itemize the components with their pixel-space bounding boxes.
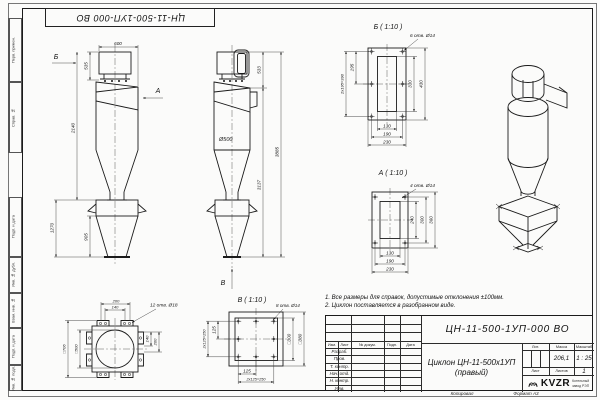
inlet-flange-bolts — [104, 80, 127, 82]
tb-mass-value: 206,1 — [549, 350, 574, 367]
dim-130-label: 130 — [386, 251, 394, 256]
drawing-line — [499, 196, 557, 217]
drawing-line — [223, 80, 225, 82]
drawing-line — [238, 54, 246, 74]
tb-scale-label: Масштаб — [574, 343, 594, 350]
drawing-line — [104, 373, 106, 375]
drawing-line — [104, 80, 106, 82]
margin-label: Перв. примен. — [9, 19, 16, 81]
drawing-line — [87, 332, 93, 344]
drawing-line — [111, 80, 113, 82]
drawing-line — [138, 354, 144, 366]
drawing-line — [96, 82, 138, 110]
dim-533-label: 533 — [257, 66, 262, 74]
drawing-line — [96, 87, 138, 92]
drawing-line — [88, 359, 90, 361]
tb-header-date: Дата — [400, 341, 421, 348]
dim-250-left-label: 2х125=250 — [203, 329, 207, 350]
flange-holes-note: 12 отв. Ø18 — [150, 303, 178, 309]
tb-header-izm: Изм. — [326, 341, 338, 348]
drawing-line — [96, 216, 108, 257]
margin-label: Подп. и дата — [9, 329, 16, 364]
side-view: 600 535 2140 1270 905 Б А — [50, 41, 164, 264]
top-stamp-text: ЦН-11-500-1УП-000 ВО — [76, 13, 185, 23]
dim-125-bottom-label: 125 — [243, 369, 251, 374]
drawing-line — [237, 216, 249, 257]
dim-sq380-label: □380 — [298, 333, 303, 344]
drawing-line — [531, 350, 532, 367]
dim-195-label: 195 — [350, 63, 355, 71]
dim-2140-label: 2140 — [71, 122, 76, 134]
drawing-line — [326, 332, 421, 333]
drawing-line — [249, 204, 257, 213]
dim-125-left-label: 125 — [212, 326, 217, 334]
drawing-line — [139, 359, 141, 361]
drawing-line — [118, 80, 120, 82]
dim-1270-label: 1270 — [50, 222, 55, 233]
drawing-line — [104, 322, 106, 324]
dim-sq500-label: □500 — [74, 344, 79, 354]
drawing-line — [132, 309, 156, 323]
dim-430-label: 430 — [419, 80, 424, 88]
drawing-line — [128, 322, 130, 324]
tb-header-list: Лист — [338, 341, 351, 348]
dim-330-label: 330 — [408, 80, 413, 88]
detail-b-holes-note: 6 отв. Ø14 — [410, 33, 435, 39]
drawing-line — [128, 373, 130, 375]
tb-doc-number: ЦН-11-500-1УП-000 ВО — [421, 316, 594, 343]
top-stamp-box: ЦН-11-500-1УП-000 ВО — [45, 8, 215, 27]
drawing-line — [88, 337, 90, 339]
drawing-line — [215, 216, 227, 257]
drawing-line — [138, 332, 144, 344]
drawing-line — [229, 80, 231, 82]
body-diameter-label: Ø500 — [218, 137, 233, 143]
drawing-line — [16, 198, 21, 256]
tb-product-name-line1: Циклон ЦН-11-500х1УП — [428, 358, 516, 368]
tb-scale-value: 1 : 25 — [574, 350, 594, 367]
notes: 1. Все размеры для справок, допустимые о… — [325, 294, 591, 310]
drawing-line — [207, 204, 215, 213]
dim-600-label: 600 — [114, 41, 122, 46]
drawing-line — [121, 321, 133, 327]
drawing-line — [16, 83, 21, 152]
dim-230-label: 230 — [382, 140, 391, 145]
format-label: Формат А3 — [503, 391, 549, 396]
drawing-line — [16, 294, 21, 327]
org-subtitle-line2: завод РЭП — [572, 384, 589, 388]
tb-sheets-label: Листов — [549, 367, 574, 375]
drawing-line — [123, 373, 125, 375]
note-line-1: 1. Все размеры для справок, допустимые о… — [325, 294, 591, 302]
dim-240-label: 240 — [410, 216, 415, 225]
drawing-line — [235, 80, 237, 82]
drawing-line — [400, 316, 401, 392]
drawing-line — [326, 324, 421, 325]
tb-role-nkontr: Н. контр. — [326, 377, 351, 384]
margin-box-sprav: Справ. № — [8, 82, 22, 153]
dim-250-bottom-label: 2х125=250 — [246, 378, 267, 382]
dim-140-right-label: 140 — [145, 335, 150, 342]
tb-sheets-value: 1 — [574, 367, 594, 375]
dim-360-label: 360 — [429, 216, 434, 224]
drawing-line — [124, 150, 138, 192]
dim-230-label: 230 — [385, 267, 394, 272]
flange-detail: 200 140 140 200 □500 □706 12 отв. Ø18 — [62, 299, 178, 381]
view-arrow-b-label: Б — [54, 54, 59, 61]
drawing-line — [99, 322, 101, 324]
tb-sheet-label: Лист — [522, 367, 549, 375]
margin-label: Подп. и дата — [9, 198, 16, 256]
dim-sq706-label: □706 — [62, 344, 67, 354]
title-block: Изм. Лист № докум. Подп. Дата Разраб. Пр… — [325, 315, 593, 391]
org-subtitle-line1: Котельный — [572, 379, 589, 383]
drawing-line — [521, 191, 535, 194]
iso-view — [496, 66, 567, 253]
note-line-2: 2. Циклон поставляется в разобранном вид… — [325, 302, 591, 310]
dim-190-label: 190 — [383, 132, 391, 137]
drawing-line — [121, 372, 133, 378]
drawing-line — [535, 158, 548, 191]
drawing-line — [97, 372, 109, 378]
tb-organization: KVZR Котельный завод РЭП — [522, 375, 594, 392]
org-subtitle: Котельный завод РЭП — [572, 379, 589, 387]
drawing-line — [16, 366, 21, 390]
dim-sq300-label: □300 — [287, 333, 292, 344]
drawing-line — [16, 19, 21, 81]
tb-role-tkontr: Т. контр. — [326, 363, 351, 370]
drawing-line — [214, 150, 226, 192]
tb-product-name: Циклон ЦН-11-500х1УП (правый) — [421, 343, 522, 392]
detail-v: В ( 1:10 ) 8 отв. Ø14 125 — [203, 297, 307, 384]
coil-logo-icon — [527, 378, 539, 390]
drawing-line — [508, 158, 521, 191]
dim-130-label: 130 — [383, 124, 391, 129]
detail-a-dimension-lines — [372, 192, 438, 274]
dim-190-label: 190 — [386, 259, 394, 264]
dim-3137-label: 3137 — [257, 179, 262, 190]
tb-role-prov: Пров. — [326, 355, 351, 362]
tb-header-sign: Подп. — [384, 341, 400, 348]
dim-200-right-label: 200 — [153, 338, 158, 346]
drawing-line — [351, 316, 352, 392]
drawing-line — [138, 204, 146, 213]
drawing-line — [529, 382, 537, 386]
detail-a: А ( 1:10 ) 4 отв. Ø14 240 — [368, 170, 438, 274]
drawing-line — [540, 350, 541, 367]
margin-label: Справ. № — [9, 83, 16, 152]
drawing-line — [508, 158, 548, 168]
drawing-line — [96, 200, 138, 216]
dim-905-label: 905 — [84, 233, 89, 241]
detail-b: Б ( 1:10 ) 6 отв. Ø14 — [340, 24, 436, 147]
margin-label: Инв. № подл. — [9, 366, 16, 390]
org-logo-text: KVZR — [541, 378, 570, 389]
dim-300-label: 300 — [420, 216, 425, 224]
margin-box-podp-data-1: Подп. и дата — [8, 197, 22, 257]
margin-box-inv-dubl: Инв. № дубл. — [8, 257, 22, 293]
drawing-line — [87, 354, 93, 366]
drawing-line — [508, 98, 548, 117]
front-flange-bolts — [223, 80, 243, 82]
drawing-line — [16, 258, 21, 292]
view-arrow-v-label: В — [221, 280, 226, 287]
detail-a-holes-note: 4 отв. Ø14 — [410, 183, 435, 189]
dim-140-top-label: 140 — [112, 305, 119, 310]
tb-header-doc: № докум. — [351, 341, 384, 348]
margin-label: Инв. № дубл. — [9, 258, 16, 292]
margin-label: Взам. инв. № — [9, 294, 16, 327]
margin-box-vzam-inv: Взам. инв. № — [8, 293, 22, 328]
front-view: Ø500 533 3137 3885 В — [207, 45, 285, 289]
drawing-line — [238, 150, 250, 192]
drawing-line — [123, 322, 125, 324]
drawing-line — [241, 80, 243, 82]
detail-b-title: Б ( 1:10 ) — [374, 24, 403, 31]
dim-535-label: 535 — [84, 62, 89, 70]
dim-200-top-label: 200 — [112, 299, 120, 304]
drawing-line — [96, 150, 110, 192]
drawing-line — [250, 92, 257, 108]
dim-390-label: 2х195=390 — [340, 73, 345, 95]
drawing-line — [125, 80, 127, 82]
margin-box-perv-primen: Перв. примен. — [8, 18, 22, 82]
tb-role-razrab: Разраб. — [326, 348, 351, 355]
view-arrow-a-label: А — [155, 88, 161, 95]
detail-v-title: В ( 1:10 ) — [238, 297, 267, 304]
tb-mass-label: Масса — [549, 343, 574, 350]
drawing-line — [88, 52, 146, 257]
detail-v-holes-note: 8 отв. Ø14 — [276, 303, 300, 308]
drawing-line — [88, 204, 96, 213]
drawing-line — [512, 66, 544, 83]
tb-role-utv: Утв. — [326, 385, 351, 392]
drawing-line — [126, 216, 138, 257]
drawing-line — [384, 316, 385, 392]
tb-product-name-line2: (правый) — [455, 368, 488, 378]
tb-lit-label: Лит. — [522, 343, 549, 350]
drawing-line — [97, 321, 109, 327]
dim-3885-label: 3885 — [275, 146, 280, 157]
copied-label: Копировал — [437, 391, 487, 396]
margin-box-podp-data-2: Подп. и дата — [8, 328, 22, 365]
drawing-line — [139, 337, 141, 339]
margin-box-inv-podl: Инв. № подл. — [8, 365, 22, 391]
drawing-line — [99, 373, 101, 375]
tb-role-nachotd: Нач. отд. — [326, 370, 351, 377]
detail-a-title: А ( 1:10 ) — [378, 170, 408, 177]
drawing-line — [16, 329, 21, 364]
